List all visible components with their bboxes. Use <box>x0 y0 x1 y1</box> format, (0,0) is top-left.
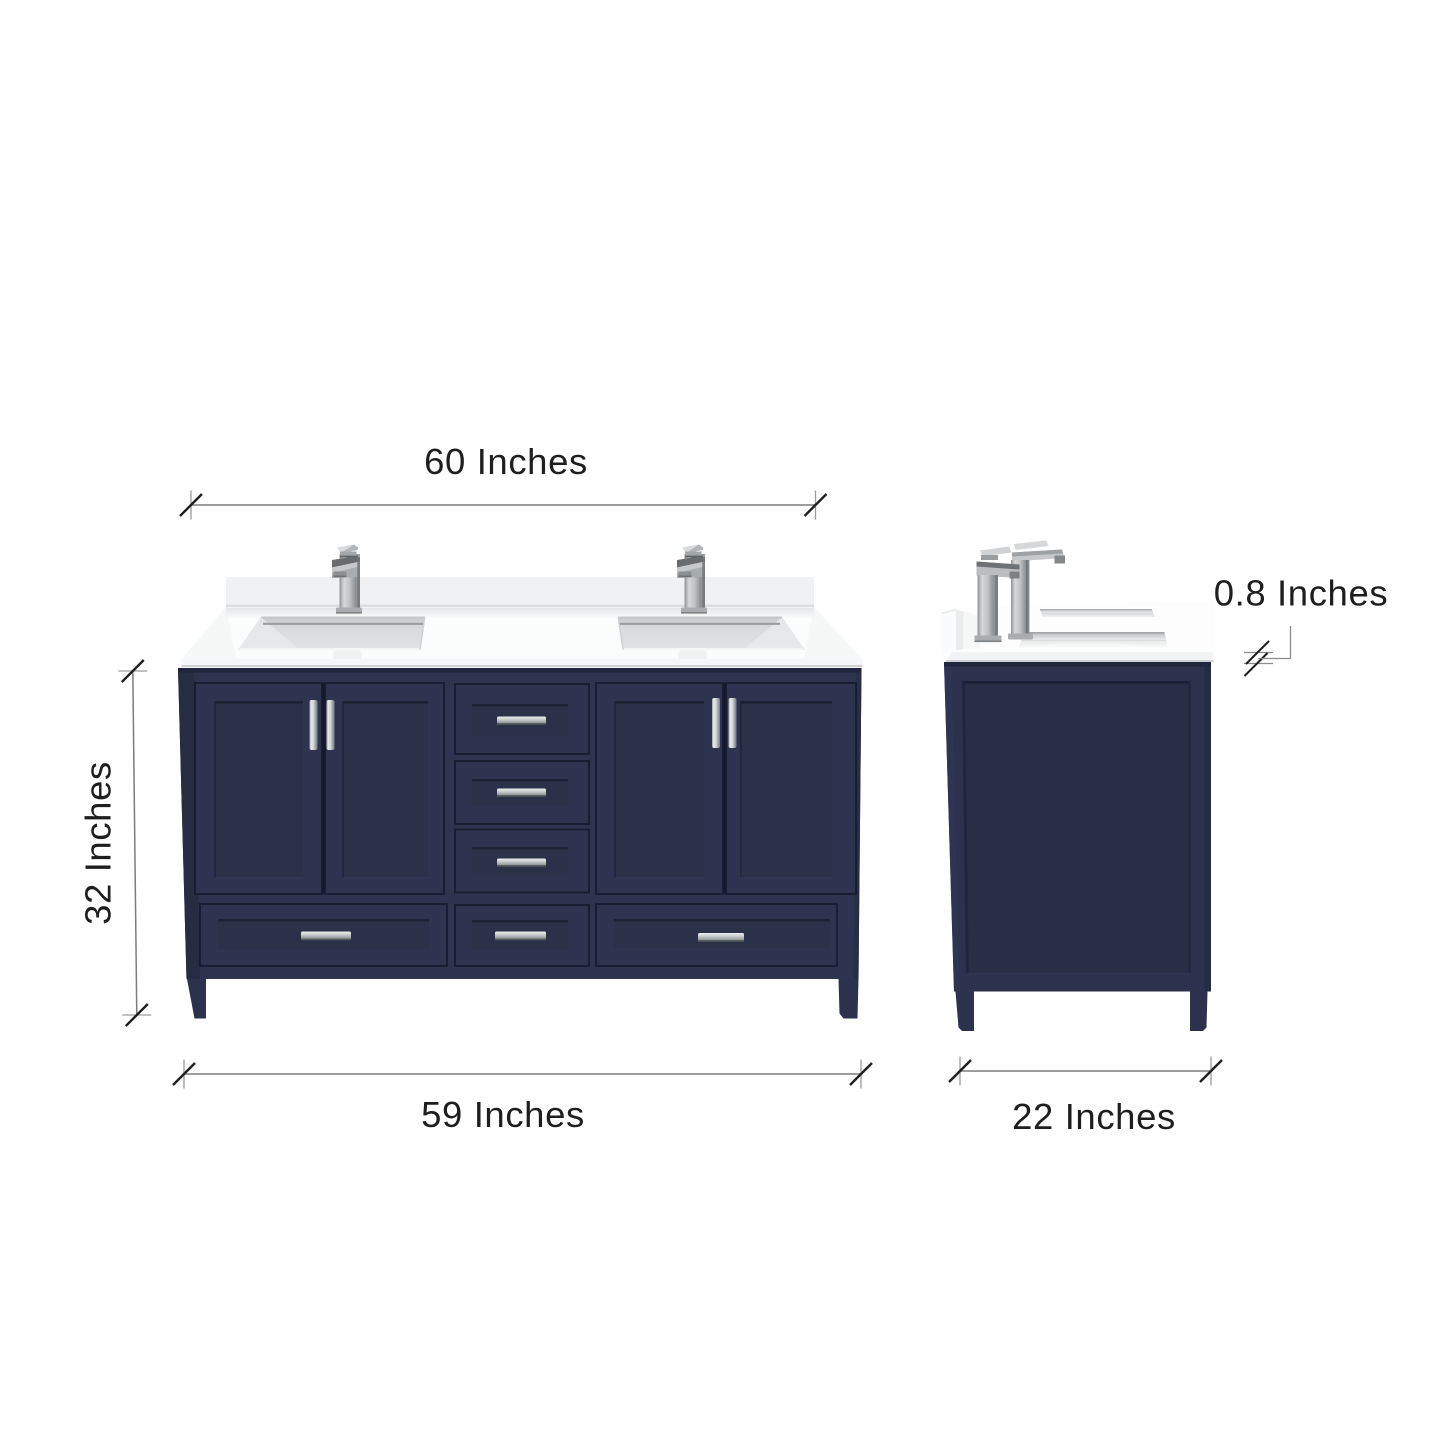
svg-text:59 Inches: 59 Inches <box>421 1094 585 1135</box>
svg-text:0.8 Inches: 0.8 Inches <box>1214 573 1388 614</box>
svg-text:32 Inches: 32 Inches <box>78 761 119 925</box>
svg-text:22 Inches: 22 Inches <box>1012 1096 1176 1137</box>
svg-text:60 Inches: 60 Inches <box>424 441 588 482</box>
